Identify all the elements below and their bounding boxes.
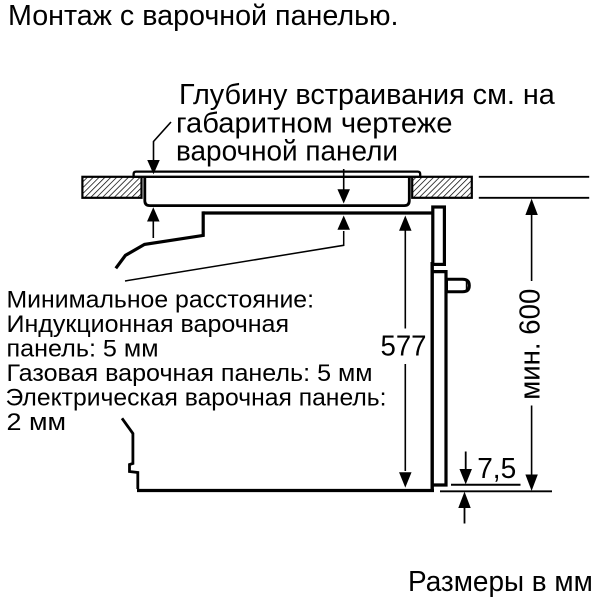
svg-text:Газовая варочная панель: 5 мм: Газовая варочная панель: 5 мм (7, 360, 373, 387)
svg-text:Монтаж с варочной панелью.: Монтаж с варочной панелью. (8, 0, 399, 32)
svg-text:2 мм: 2 мм (7, 409, 67, 436)
svg-text:Глубину встраивания см. на: Глубину встраивания см. на (179, 79, 556, 111)
svg-text:Размеры в мм: Размеры в мм (408, 566, 593, 598)
svg-text:варочной панели: варочной панели (176, 136, 398, 168)
svg-text:Индукционная варочная: Индукционная варочная (7, 311, 290, 338)
svg-text:Минимальное расстояние:: Минимальное расстояние: (7, 287, 315, 314)
svg-text:панель: 5 мм: панель: 5 мм (7, 336, 159, 363)
svg-text:габаритном чертеже: габаритном чертеже (176, 107, 453, 139)
svg-text:Электрическая варочная панель:: Электрическая варочная панель: (6, 384, 387, 411)
svg-text:577: 577 (381, 331, 427, 363)
svg-text:мин. 600: мин. 600 (514, 289, 546, 400)
svg-text:7,5: 7,5 (477, 453, 516, 485)
